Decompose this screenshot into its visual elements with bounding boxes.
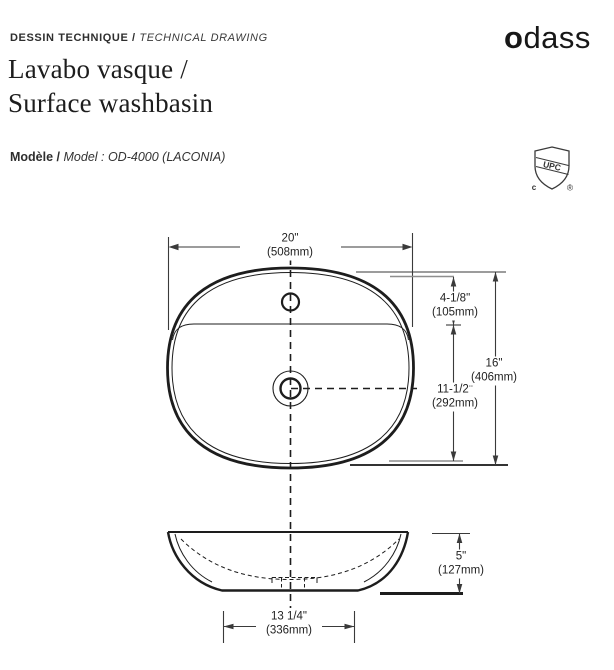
spec-sheet: DESSIN TECHNIQUE / TECHNICAL DRAWING Lav… xyxy=(0,0,614,670)
dim-faucet-offset-mm: (105mm) xyxy=(432,306,478,320)
dim-overall-depth-in: 16" xyxy=(471,358,517,372)
drain-flange-ends xyxy=(272,578,317,584)
arrow-width-left xyxy=(169,244,179,250)
dim-base-width-mm: (336mm) xyxy=(266,624,312,638)
dim-label-overall-width: 20" (508mm) xyxy=(264,232,316,261)
dim-drain-offset-mm: (292mm) xyxy=(432,397,478,411)
dim-overall-depth-mm: (406mm) xyxy=(471,371,517,385)
arrow-base-left xyxy=(224,624,234,630)
technical-drawing xyxy=(0,0,614,670)
arrow-depth-up xyxy=(493,272,499,282)
dim-height-in: 5" xyxy=(438,551,484,565)
arrow-height-up xyxy=(457,534,463,544)
dim-label-drain-offset: 11-1/2" (292mm) xyxy=(429,383,481,412)
dim-base-width-in: 13 1/4" xyxy=(266,611,312,625)
arrow-depth-down xyxy=(493,456,499,466)
dim-overall-width-in: 20" xyxy=(267,233,313,247)
dim-label-height: 5" (127mm) xyxy=(435,550,487,579)
dim-label-faucet-offset: 4-1/8" (105mm) xyxy=(429,292,481,321)
arrow-drain-down xyxy=(451,452,457,462)
dim-label-overall-depth: 16" (406mm) xyxy=(468,357,520,386)
dimension-lines-side-view xyxy=(224,534,471,644)
arrow-drain-up xyxy=(451,325,457,335)
dim-overall-width-mm: (508mm) xyxy=(267,246,313,260)
arrow-faucet-up xyxy=(451,277,457,287)
side-view-basin xyxy=(168,532,463,594)
side-wall-thickness-right xyxy=(364,534,401,582)
dimension-lines-top-view xyxy=(169,233,509,465)
dim-height-mm: (127mm) xyxy=(438,564,484,578)
dim-drain-offset-in: 11-1/2" xyxy=(432,384,478,398)
dim-faucet-offset-in: 4-1/8" xyxy=(432,293,478,307)
drain-outer-circle xyxy=(273,371,308,406)
side-wall-thickness-left xyxy=(175,534,212,582)
arrow-base-right xyxy=(345,624,355,630)
dim-label-base-width: 13 1/4" (336mm) xyxy=(263,610,315,639)
side-outer-profile xyxy=(168,532,408,591)
arrow-width-right xyxy=(403,244,413,250)
